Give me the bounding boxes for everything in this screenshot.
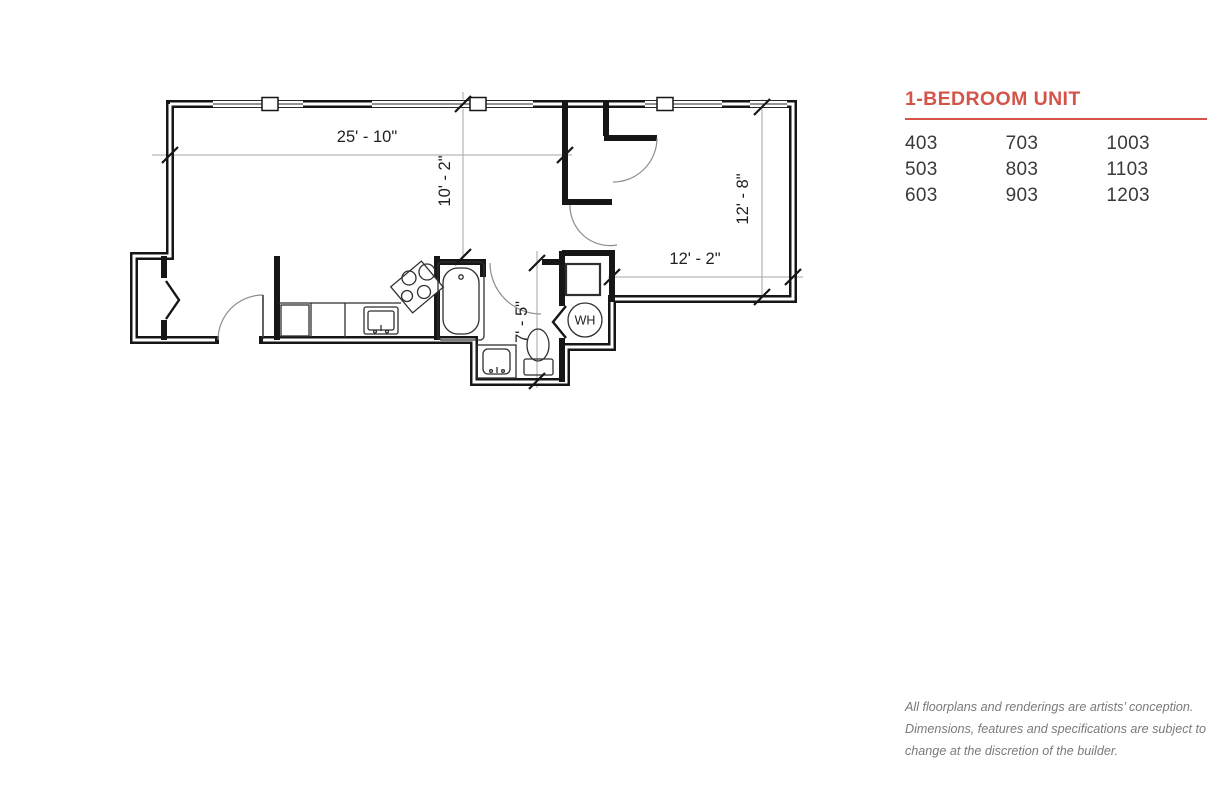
dim-bedroom-width: 12' - 2" (669, 250, 720, 268)
unit-column: 403 503 603 (905, 131, 1006, 209)
unit-number: 603 (905, 183, 1006, 209)
dimension-labels: 25' - 10" 10' - 2" 12' - 8" 12' - 2" 7' … (337, 128, 752, 343)
disclaimer-line: All floorplans and renderings are artist… (905, 696, 1227, 718)
dim-living-depth: 10' - 2" (436, 155, 454, 206)
unit-info-panel: 1-BEDROOM UNIT 403 503 603 703 803 903 1… (905, 88, 1207, 209)
unit-number: 903 (1006, 183, 1107, 209)
unit-type-title: 1-BEDROOM UNIT (905, 88, 1207, 120)
fridge (281, 305, 309, 336)
unit-column: 703 803 903 (1006, 131, 1107, 209)
unit-number: 1003 (1106, 131, 1207, 157)
unit-number-list: 403 503 603 703 803 903 1003 1103 1203 (905, 131, 1207, 209)
floorplan-sheet: 25' - 10" 10' - 2" 12' - 8" 12' - 2" 7' … (0, 0, 1228, 794)
unit-number: 703 (1006, 131, 1107, 157)
unit-number: 803 (1006, 157, 1107, 183)
dim-bath-depth: 7' - 5" (513, 301, 531, 343)
bathtub (438, 262, 484, 340)
unit-number: 1103 (1106, 157, 1207, 183)
wh-closet-bifold (553, 306, 566, 338)
kitchen-sink (364, 307, 398, 334)
dim-living-width: 25' - 10" (337, 128, 398, 146)
unit-column: 1003 1103 1203 (1106, 131, 1207, 209)
water-heater-label: WH (575, 314, 596, 328)
dim-bedroom-depth: 12' - 8" (734, 173, 752, 224)
disclaimer-line: change at the discretion of the builder. (905, 740, 1227, 762)
entry-closet-bifold (166, 281, 179, 319)
windows (213, 98, 787, 111)
closet-door-arc (613, 138, 657, 182)
entry-door-arc (218, 295, 263, 340)
unit-number: 1203 (1106, 183, 1207, 209)
bedroom-door-arc (570, 205, 617, 246)
wh-shelf (566, 264, 600, 295)
disclaimer-line: Dimensions, features and specifications … (905, 718, 1227, 740)
unit-number: 403 (905, 131, 1006, 157)
bifold-doors (166, 281, 566, 338)
unit-number: 503 (905, 157, 1006, 183)
disclaimer: All floorplans and renderings are artist… (905, 696, 1227, 762)
vanity-sink (477, 345, 516, 378)
kitchen-counter (279, 303, 401, 337)
